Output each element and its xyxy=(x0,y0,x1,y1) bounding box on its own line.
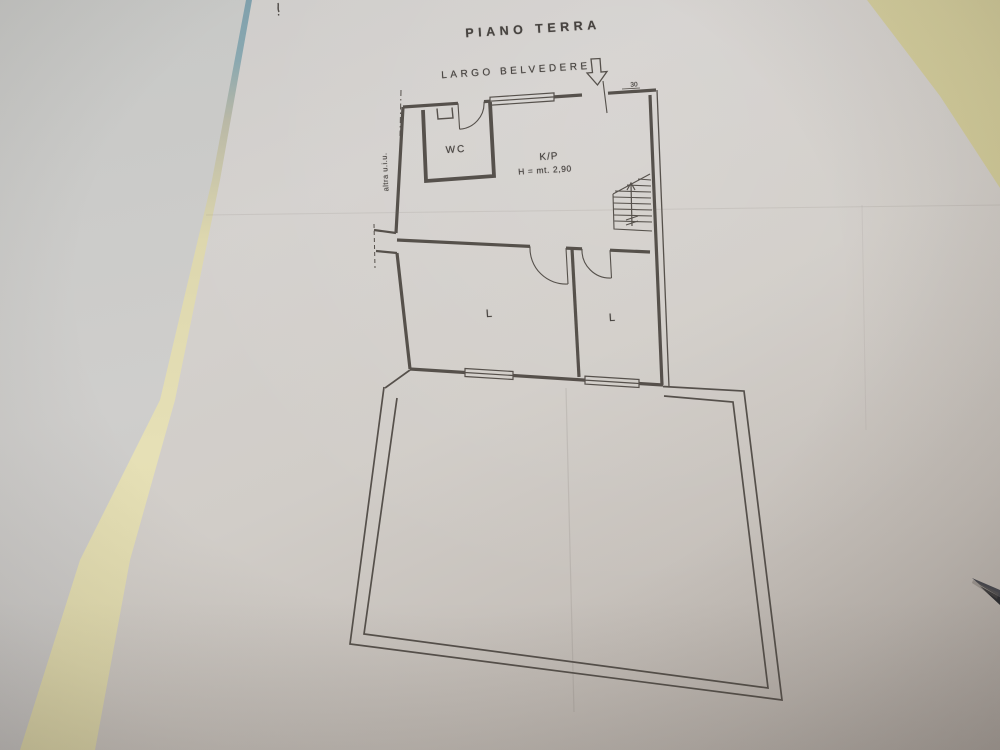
pen-tip xyxy=(0,0,1000,750)
photo-of-floorplan: { "floorplan": { "title": "PIANO TERRA",… xyxy=(0,0,1000,750)
